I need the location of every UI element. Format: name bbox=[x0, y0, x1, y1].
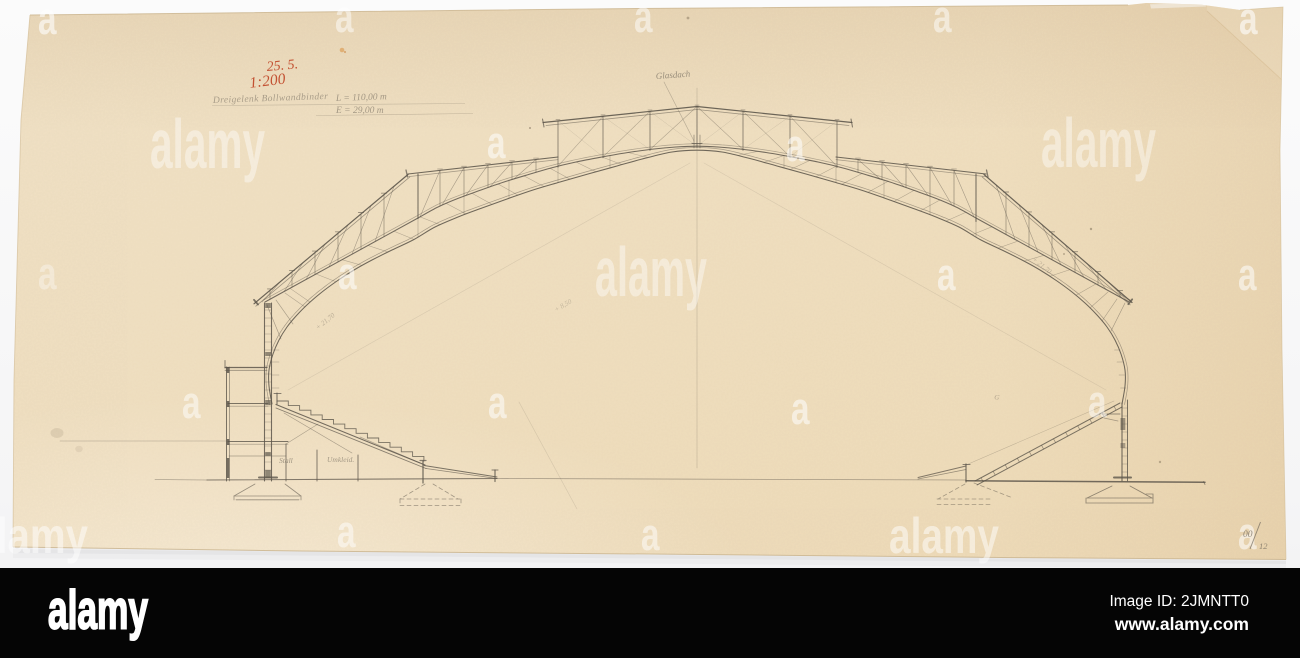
svg-text:a: a bbox=[38, 248, 57, 299]
svg-text:alamy: alamy bbox=[595, 233, 707, 311]
svg-text:Stall: Stall bbox=[279, 456, 293, 465]
svg-text:a: a bbox=[488, 377, 507, 428]
svg-text:www.alamy.com: www.alamy.com bbox=[1114, 614, 1249, 634]
svg-text:a: a bbox=[933, 0, 952, 42]
svg-text:a: a bbox=[937, 249, 956, 300]
svg-text:a: a bbox=[1088, 376, 1107, 427]
svg-text:a: a bbox=[338, 248, 357, 299]
svg-text:a: a bbox=[1238, 249, 1257, 300]
svg-text:alamy: alamy bbox=[1041, 104, 1156, 182]
svg-text:a: a bbox=[641, 509, 660, 560]
svg-text:alamy: alamy bbox=[150, 105, 265, 183]
svg-text:12: 12 bbox=[1259, 541, 1268, 551]
svg-text:a: a bbox=[38, 0, 57, 44]
svg-text:Umkleid.: Umkleid. bbox=[327, 455, 354, 464]
svg-text:a: a bbox=[634, 0, 653, 42]
svg-text:00: 00 bbox=[1243, 530, 1253, 540]
svg-text:a: a bbox=[791, 383, 810, 434]
svg-text:a: a bbox=[1239, 0, 1258, 44]
svg-text:Image ID: 2JMNTT0: Image ID: 2JMNTT0 bbox=[1109, 593, 1249, 610]
svg-text:alamy: alamy bbox=[889, 508, 999, 564]
svg-text:a: a bbox=[335, 0, 354, 42]
svg-text:L = 110,00 m: L = 110,00 m bbox=[335, 92, 387, 104]
svg-text:alamy: alamy bbox=[48, 579, 148, 641]
svg-text:a: a bbox=[182, 377, 201, 428]
svg-text:alamy: alamy bbox=[0, 508, 88, 564]
svg-text:a: a bbox=[786, 120, 805, 171]
svg-text:a: a bbox=[487, 117, 506, 168]
svg-text:a: a bbox=[337, 506, 356, 557]
